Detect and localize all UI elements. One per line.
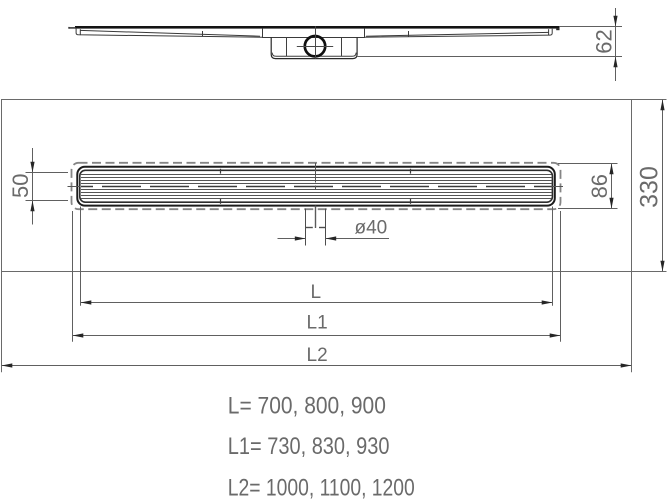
svg-text:L: L bbox=[311, 282, 322, 303]
svg-text:62: 62 bbox=[592, 29, 617, 53]
svg-text:L1: L1 bbox=[307, 312, 328, 333]
svg-text:330: 330 bbox=[636, 166, 664, 208]
svg-text:L2= 1000, 1100, 1200: L2= 1000, 1100, 1200 bbox=[228, 473, 415, 500]
svg-text:50: 50 bbox=[8, 174, 33, 198]
svg-text:86: 86 bbox=[587, 174, 612, 198]
svg-text:L2: L2 bbox=[307, 345, 328, 366]
svg-text:L= 700, 800, 900: L= 700, 800, 900 bbox=[228, 392, 386, 419]
svg-text:ø40: ø40 bbox=[355, 218, 388, 239]
svg-text:L1= 730, 830, 930: L1= 730, 830, 930 bbox=[228, 432, 390, 459]
